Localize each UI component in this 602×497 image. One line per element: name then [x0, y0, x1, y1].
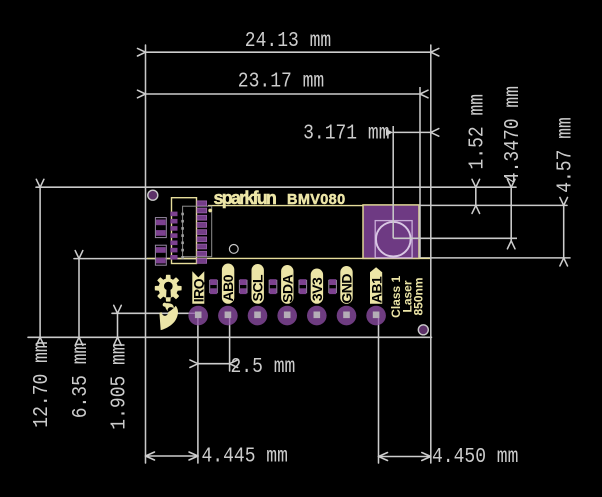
- svg-text:23.17 mm: 23.17 mm: [238, 68, 324, 93]
- svg-text:BMV080: BMV080: [287, 192, 346, 208]
- svg-text:1.52 mm: 1.52 mm: [464, 94, 489, 170]
- svg-text:4.57 mm: 4.57 mm: [552, 117, 577, 193]
- svg-text:1.905 mm: 1.905 mm: [106, 343, 131, 429]
- svg-text:AB1: AB1: [368, 276, 384, 303]
- svg-text:3V3: 3V3: [309, 277, 325, 301]
- svg-text:4.3470 mm: 4.3470 mm: [500, 86, 525, 183]
- svg-text:GND: GND: [339, 274, 355, 304]
- svg-text:AB0: AB0: [220, 274, 236, 301]
- svg-text:sparkfun: sparkfun: [214, 188, 276, 208]
- svg-text:SCL: SCL: [250, 274, 266, 301]
- svg-text:IRQ: IRQ: [190, 278, 206, 302]
- svg-text:850nm: 850nm: [412, 277, 426, 315]
- svg-text:2.5 mm: 2.5 mm: [231, 353, 296, 378]
- svg-text:12.70 mm: 12.70 mm: [29, 341, 54, 427]
- svg-text:4.450 mm: 4.450 mm: [432, 444, 518, 469]
- svg-text:3.171 mm: 3.171 mm: [303, 120, 389, 145]
- svg-text:SDA: SDA: [279, 274, 295, 302]
- svg-text:6.35 mm: 6.35 mm: [67, 343, 92, 419]
- svg-text:24.13 mm: 24.13 mm: [245, 28, 331, 53]
- svg-text:4.445 mm: 4.445 mm: [202, 443, 288, 468]
